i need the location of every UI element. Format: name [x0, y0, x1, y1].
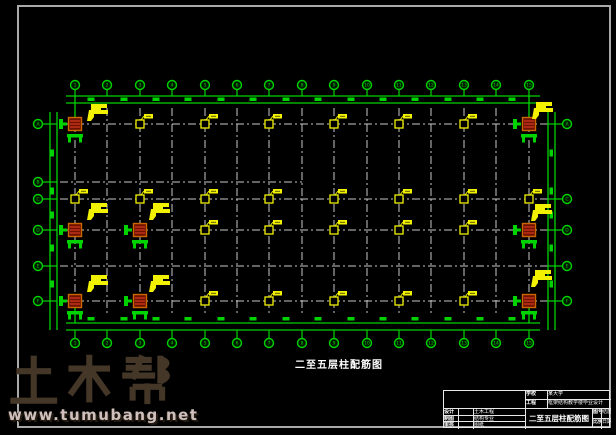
svg-text:D: D — [36, 228, 40, 234]
watermark-brand-logo — [6, 352, 176, 406]
title-block: 学校 某大学 工程 框架结构教学楼毕业设计 设计 土木工程 制图 结构专业 审核… — [443, 390, 610, 428]
svg-text:F: F — [37, 299, 40, 305]
yellow-columns — [71, 114, 542, 305]
tb-right-b2: 日期 — [602, 419, 611, 429]
svg-text:1: 1 — [74, 341, 77, 347]
tb-row3-value: 图纸 — [474, 422, 526, 429]
tb-right-b1: 结施 — [602, 409, 611, 419]
svg-text:5: 5 — [204, 341, 207, 347]
tb-row1-label: 设计 — [444, 409, 459, 416]
svg-text:D: D — [565, 228, 569, 234]
svg-text:F: F — [566, 299, 569, 305]
svg-text:C: C — [36, 197, 39, 203]
tb-row1-mid — [459, 409, 474, 416]
svg-text:10: 10 — [364, 83, 370, 89]
svg-text:8: 8 — [301, 83, 304, 89]
title-block-logo-cell — [444, 391, 526, 409]
svg-text:B: B — [36, 180, 39, 186]
project-value: 框架结构教学楼毕业设计 — [548, 400, 611, 409]
svg-text:2: 2 — [106, 341, 109, 347]
red-columns — [59, 118, 537, 320]
title-block-drawing-name: 二至五层柱配筋图 — [526, 409, 593, 427]
svg-text:C: C — [565, 197, 568, 203]
svg-text:10: 10 — [364, 341, 370, 347]
tb-row1-value: 土木工程 — [474, 409, 526, 416]
svg-text:3: 3 — [139, 83, 142, 89]
drawing-title: 二至五层柱配筋图 — [295, 356, 391, 371]
svg-text:6: 6 — [236, 83, 239, 89]
svg-text:13: 13 — [461, 341, 467, 347]
svg-text:14: 14 — [493, 83, 499, 89]
svg-text:13: 13 — [461, 83, 467, 89]
cad-viewport: 1122334455667788991010111112121313141415… — [0, 0, 616, 435]
school-label: 学校 — [526, 391, 548, 400]
svg-text:15: 15 — [526, 341, 532, 347]
svg-text:12: 12 — [428, 83, 434, 89]
tb-right-a2: 比例 — [593, 419, 602, 429]
svg-text:7: 7 — [268, 341, 271, 347]
watermark: www.tumubang.net — [6, 352, 186, 432]
svg-text:E: E — [566, 264, 569, 270]
svg-text:4: 4 — [171, 83, 174, 89]
svg-text:14: 14 — [493, 341, 499, 347]
tb-right-a1: 图号 — [593, 409, 602, 419]
annotation-flags — [87, 102, 553, 292]
svg-text:9: 9 — [333, 341, 336, 347]
school-value: 某大学 — [548, 391, 611, 400]
watermark-url: www.tumubang.net — [8, 406, 198, 424]
svg-text:11: 11 — [396, 83, 402, 89]
tb-row3-mid — [459, 422, 474, 429]
svg-text:4: 4 — [171, 341, 174, 347]
tb-row3-label: 审核 — [444, 422, 459, 429]
svg-text:11: 11 — [396, 341, 402, 347]
svg-text:3: 3 — [139, 341, 142, 347]
svg-text:E: E — [37, 264, 40, 270]
svg-text:8: 8 — [301, 341, 304, 347]
svg-text:1: 1 — [74, 83, 77, 89]
svg-text:6: 6 — [236, 341, 239, 347]
svg-text:7: 7 — [268, 83, 271, 89]
project-label: 工程 — [526, 400, 548, 409]
svg-text:2: 2 — [106, 83, 109, 89]
svg-text:15: 15 — [526, 83, 532, 89]
svg-text:9: 9 — [333, 83, 336, 89]
svg-text:5: 5 — [204, 83, 207, 89]
grid-lines — [44, 108, 562, 315]
svg-text:12: 12 — [428, 341, 434, 347]
